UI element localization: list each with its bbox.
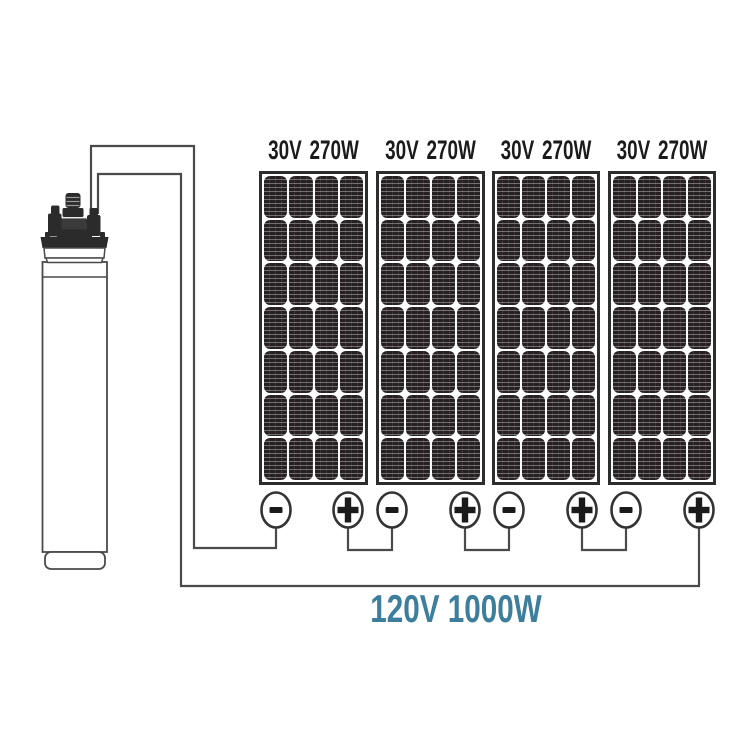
solar-cell: [315, 395, 338, 437]
solar-cell: [663, 395, 686, 437]
solar-cell: [497, 176, 520, 218]
solar-cell: [522, 176, 545, 218]
solar-cell: [638, 307, 661, 349]
solar-cell: [432, 395, 455, 437]
solar-cell: [522, 220, 545, 262]
solar-cell: [522, 438, 545, 480]
solar-cell: [432, 263, 455, 305]
solar-cell: [497, 351, 520, 393]
solar-cell: [381, 351, 404, 393]
solar-cell: [497, 307, 520, 349]
solar-cell: [406, 176, 429, 218]
panel-rating-label: 30V270W: [275, 137, 351, 165]
solar-cell: [522, 395, 545, 437]
solar-cell: [688, 351, 711, 393]
solar-cell: [406, 220, 429, 262]
solar-cell: [381, 176, 404, 218]
solar-panel-4: [608, 171, 716, 485]
series-link-2: [465, 527, 509, 550]
solar-cell: [572, 176, 595, 218]
solar-cell: [663, 351, 686, 393]
solar-cell: [381, 438, 404, 480]
solar-cell: [289, 307, 312, 349]
solar-cell: [688, 176, 711, 218]
solar-cell: [522, 351, 545, 393]
solar-cell: [688, 438, 711, 480]
solar-cell: [497, 395, 520, 437]
solar-cell: [572, 307, 595, 349]
solar-cell: [547, 351, 570, 393]
solar-panel-2: [376, 171, 485, 485]
terminal-panel4-plus-icon: [685, 493, 714, 528]
solar-cell: [613, 307, 636, 349]
solar-cell: [613, 176, 636, 218]
solar-cell: [315, 176, 338, 218]
panel-voltage: 30V: [268, 137, 302, 165]
solar-cell: [613, 263, 636, 305]
solar-cell: [264, 395, 287, 437]
solar-cell: [406, 395, 429, 437]
solar-cell: [289, 263, 312, 305]
panel-power: 270W: [542, 137, 591, 165]
panel-rating-label: 30V270W: [508, 137, 584, 165]
solar-cell: [572, 395, 595, 437]
terminal-panel3-minus-icon: [495, 493, 524, 528]
solar-cell: [432, 307, 455, 349]
solar-cell: [315, 438, 338, 480]
solar-cell: [406, 438, 429, 480]
pump-bottom-cap: [45, 552, 105, 569]
panel-voltage: 30V: [617, 137, 651, 165]
solar-cell: [638, 263, 661, 305]
solar-cell: [663, 263, 686, 305]
solar-cell: [381, 220, 404, 262]
solar-cell: [340, 351, 363, 393]
solar-cell: [457, 263, 480, 305]
solar-cell: [289, 351, 312, 393]
solar-cell: [638, 351, 661, 393]
solar-cell: [432, 438, 455, 480]
solar-cell: [457, 176, 480, 218]
solar-cell: [264, 263, 287, 305]
terminal-panel1-plus-icon: [334, 493, 363, 528]
solar-cell: [457, 351, 480, 393]
solar-cell: [547, 176, 570, 218]
solar-cell: [613, 395, 636, 437]
solar-cell: [340, 176, 363, 218]
panel-voltage: 30V: [501, 137, 535, 165]
solar-cell: [432, 351, 455, 393]
series-link-1: [348, 527, 392, 550]
panel-rating-label: 30V270W: [392, 137, 468, 165]
solar-cell: [381, 263, 404, 305]
solar-cell: [497, 220, 520, 262]
solar-cell: [638, 220, 661, 262]
solar-cell: [522, 307, 545, 349]
submersible-pump-icon: [41, 193, 109, 569]
solar-cell: [613, 438, 636, 480]
solar-cell: [613, 351, 636, 393]
solar-cell: [340, 220, 363, 262]
series-links: [348, 527, 626, 550]
panel-terminals: [262, 493, 714, 528]
solar-cell: [289, 395, 312, 437]
wire-pump-to-panel1-minus: [91, 146, 276, 548]
solar-cell: [406, 351, 429, 393]
solar-cell-grid: [497, 176, 595, 480]
solar-panel-1: [259, 171, 368, 485]
system-output-label: 120V 1000W: [370, 590, 541, 629]
solar-cell: [547, 438, 570, 480]
solar-cell: [340, 395, 363, 437]
solar-cell: [340, 438, 363, 480]
solar-cell: [572, 263, 595, 305]
pump-top-cap: [41, 237, 109, 248]
solar-cell: [381, 307, 404, 349]
solar-cell: [289, 176, 312, 218]
solar-cell: [406, 307, 429, 349]
solar-cell: [264, 351, 287, 393]
solar-cell: [315, 220, 338, 262]
solar-cell-grid: [613, 176, 711, 480]
terminal-panel4-minus-icon: [612, 493, 641, 528]
series-link-3: [582, 527, 626, 550]
solar-cell: [547, 395, 570, 437]
solar-cell: [264, 438, 287, 480]
terminal-panel2-plus-icon: [451, 493, 480, 528]
solar-cell: [638, 395, 661, 437]
terminal-panel2-minus-icon: [378, 493, 407, 528]
solar-cell: [406, 263, 429, 305]
solar-cell: [572, 220, 595, 262]
solar-cell: [663, 307, 686, 349]
panel-rating-label: 30V270W: [624, 137, 700, 165]
solar-cell: [457, 395, 480, 437]
solar-cell: [638, 176, 661, 218]
solar-cell: [522, 263, 545, 305]
panel-power: 270W: [426, 137, 475, 165]
solar-cell: [340, 263, 363, 305]
solar-cell: [432, 176, 455, 218]
solar-cell: [381, 395, 404, 437]
solar-cell: [547, 220, 570, 262]
solar-cell: [547, 307, 570, 349]
solar-cell: [289, 220, 312, 262]
solar-cell: [264, 176, 287, 218]
solar-cell: [497, 263, 520, 305]
pump-cable-connector-left-icon: [48, 206, 62, 237]
solar-cell: [264, 307, 287, 349]
panel-power: 270W: [309, 137, 358, 165]
solar-cell: [613, 220, 636, 262]
solar-cell: [432, 220, 455, 262]
solar-cell: [663, 438, 686, 480]
solar-cell: [315, 351, 338, 393]
solar-cell: [457, 307, 480, 349]
solar-cell: [340, 307, 363, 349]
solar-cell: [315, 307, 338, 349]
solar-panel-3: [492, 171, 600, 485]
solar-cell-grid: [264, 176, 363, 480]
solar-cell: [457, 438, 480, 480]
panel-voltage: 30V: [385, 137, 419, 165]
solar-cell: [663, 220, 686, 262]
solar-cell: [663, 176, 686, 218]
solar-cell: [457, 220, 480, 262]
solar-cell: [572, 438, 595, 480]
solar-cell: [572, 351, 595, 393]
terminal-panel3-plus-icon: [568, 493, 597, 528]
solar-cell: [547, 263, 570, 305]
solar-cell: [315, 263, 338, 305]
solar-cell: [688, 395, 711, 437]
solar-cell: [289, 438, 312, 480]
panel-power: 270W: [658, 137, 707, 165]
solar-cell-grid: [381, 176, 480, 480]
solar-cell: [688, 307, 711, 349]
solar-cell: [264, 220, 287, 262]
solar-cell: [638, 438, 661, 480]
solar-cell: [688, 220, 711, 262]
solar-cell: [497, 438, 520, 480]
solar-pump-wiring-diagram: 30V270W30V270W30V270W30V270W 120V 1000W: [0, 0, 750, 750]
solar-cell: [688, 263, 711, 305]
terminal-panel1-minus-icon: [262, 493, 291, 528]
